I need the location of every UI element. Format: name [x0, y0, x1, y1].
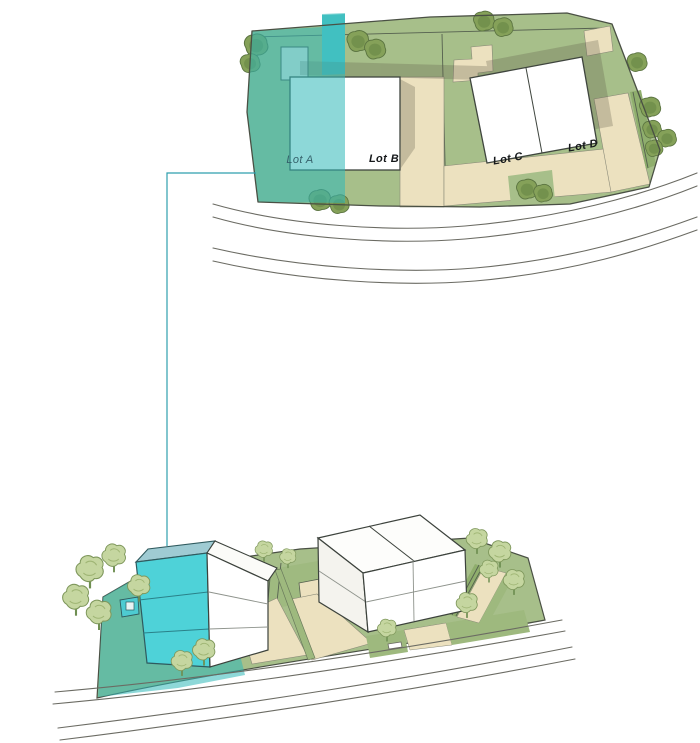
site-plan-svg: Lot A Lot B Lot C Lot D: [0, 0, 700, 743]
tree-icon: [645, 140, 663, 157]
tree-icon: [534, 184, 553, 202]
lot-a-label[interactable]: Lot A: [286, 154, 313, 166]
tree-icon: [493, 18, 513, 37]
tree-icon: [365, 39, 386, 59]
iso-lot-a-porch-step: [126, 602, 134, 610]
tree-icon: [640, 97, 661, 117]
lot-b-label[interactable]: Lot B: [369, 153, 399, 165]
iso-view: [53, 515, 575, 740]
tree-icon: [474, 11, 495, 31]
plan-view: Lot A Lot B Lot C Lot D: [213, 11, 697, 283]
lot-a-leader-line: [167, 173, 256, 546]
lot-a-selection-overlay[interactable]: [247, 13, 345, 203]
tree-icon: [76, 556, 103, 589]
iso-building-lot-c-d[interactable]: [318, 515, 467, 632]
tree-icon: [63, 584, 89, 615]
tree-icon: [627, 53, 647, 72]
tree-icon: [102, 544, 126, 572]
site-plan-diagram: Lot A Lot B Lot C Lot D: [0, 0, 700, 743]
